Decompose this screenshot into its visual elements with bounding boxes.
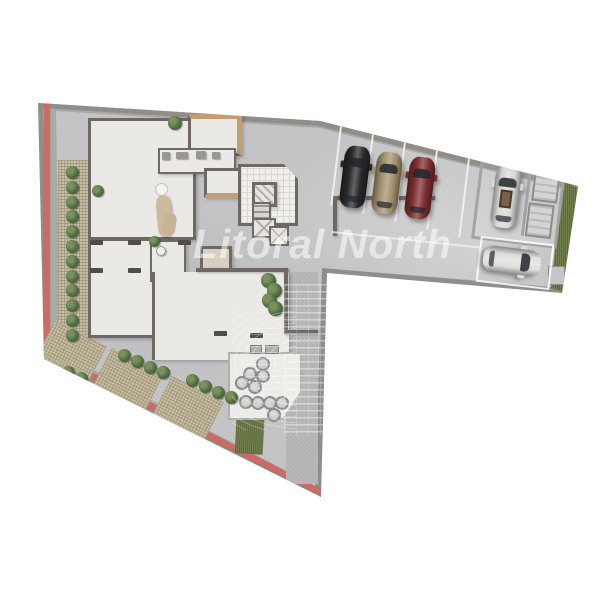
parking-retaining-wall-v xyxy=(333,196,337,236)
shrub-diagonal xyxy=(186,374,199,387)
room-upper-left xyxy=(88,118,196,240)
terrace-top-wall xyxy=(196,268,288,272)
wheel-stop xyxy=(178,240,191,245)
hedge-terrace xyxy=(268,301,283,316)
wheel-stop xyxy=(128,268,141,273)
planter-box-1 xyxy=(250,345,262,354)
bath-fixture xyxy=(156,246,166,256)
patio-table xyxy=(267,408,281,422)
patio-table xyxy=(248,380,262,394)
wheel-stop xyxy=(90,240,103,245)
lobby-round-table xyxy=(155,183,168,196)
service-room-2 xyxy=(269,226,289,246)
shrub-diagonal xyxy=(131,355,144,368)
indoor-plant xyxy=(92,185,104,197)
kitchen-fixture-3 xyxy=(196,151,206,159)
kitchen-fixture-2 xyxy=(176,152,188,159)
storage-box-1 xyxy=(531,169,561,204)
shrub-left-row xyxy=(66,166,79,179)
shrub-left-row xyxy=(66,196,79,209)
shrub-left-row xyxy=(66,314,79,327)
red-curb-left xyxy=(44,104,50,352)
planter-box-2 xyxy=(265,345,279,354)
wheel-stop xyxy=(214,331,227,336)
shrub-diagonal xyxy=(225,391,238,404)
patio-table xyxy=(235,376,249,390)
shrub-left-row xyxy=(66,329,79,342)
shrub-left-row xyxy=(66,255,79,268)
storage-box-2 xyxy=(525,202,555,239)
walkway-cross-wall xyxy=(284,330,318,334)
shrub-diagonal xyxy=(199,380,212,393)
shrub-diagonal xyxy=(144,361,157,374)
kitchen-fixture-4 xyxy=(212,152,220,159)
shrub-diagonal xyxy=(62,366,75,379)
shrub-diagonal xyxy=(118,349,131,362)
open-sunroof xyxy=(499,189,513,209)
kitchen-fixture-1 xyxy=(162,152,170,160)
site-plan-render: Litoral North xyxy=(0,0,600,600)
terrace-right-wall xyxy=(284,268,288,334)
shrub-left-row xyxy=(66,181,79,194)
shrub-left-row xyxy=(66,270,79,283)
shrub-left-row xyxy=(66,240,79,253)
property-outline: Litoral North xyxy=(0,0,600,600)
shrub-diagonal xyxy=(75,372,88,385)
wheel-stop xyxy=(90,268,103,273)
indoor-plant xyxy=(168,116,182,130)
shrub-diagonal xyxy=(157,366,170,379)
enclosed-parking-bay xyxy=(471,153,567,249)
wheel-stop xyxy=(250,333,263,338)
shrub-diagonal xyxy=(212,386,225,399)
wheel-stop xyxy=(128,240,141,245)
